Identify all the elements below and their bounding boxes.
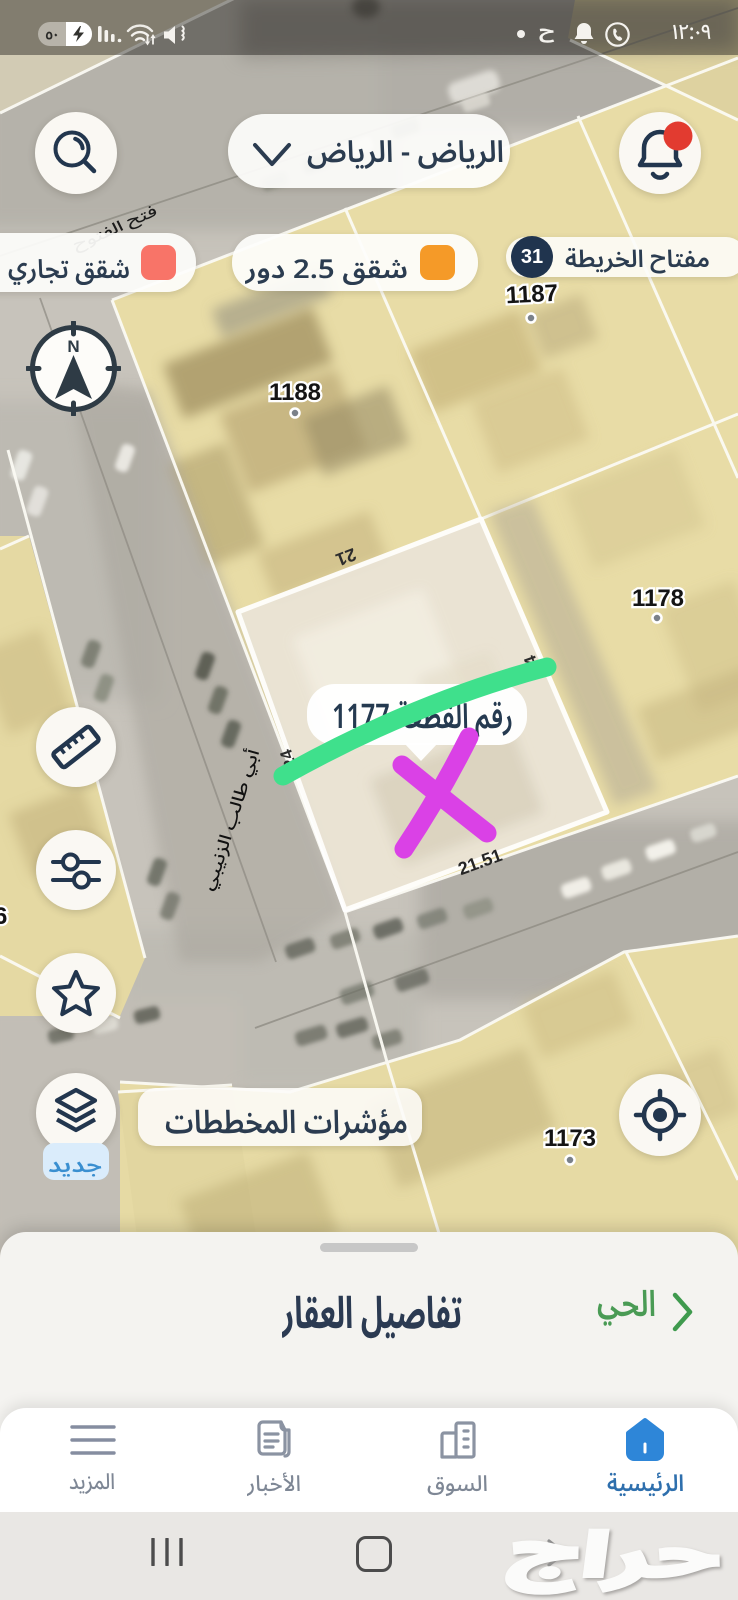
svg-text:N: N [67,337,79,356]
svg-text:6: 6 [0,903,7,930]
svg-text:1178: 1178 [632,585,684,612]
svg-text:1188: 1188 [269,379,321,406]
svg-text:1187: 1187 [505,280,558,310]
svg-text:1173: 1173 [544,1125,596,1152]
